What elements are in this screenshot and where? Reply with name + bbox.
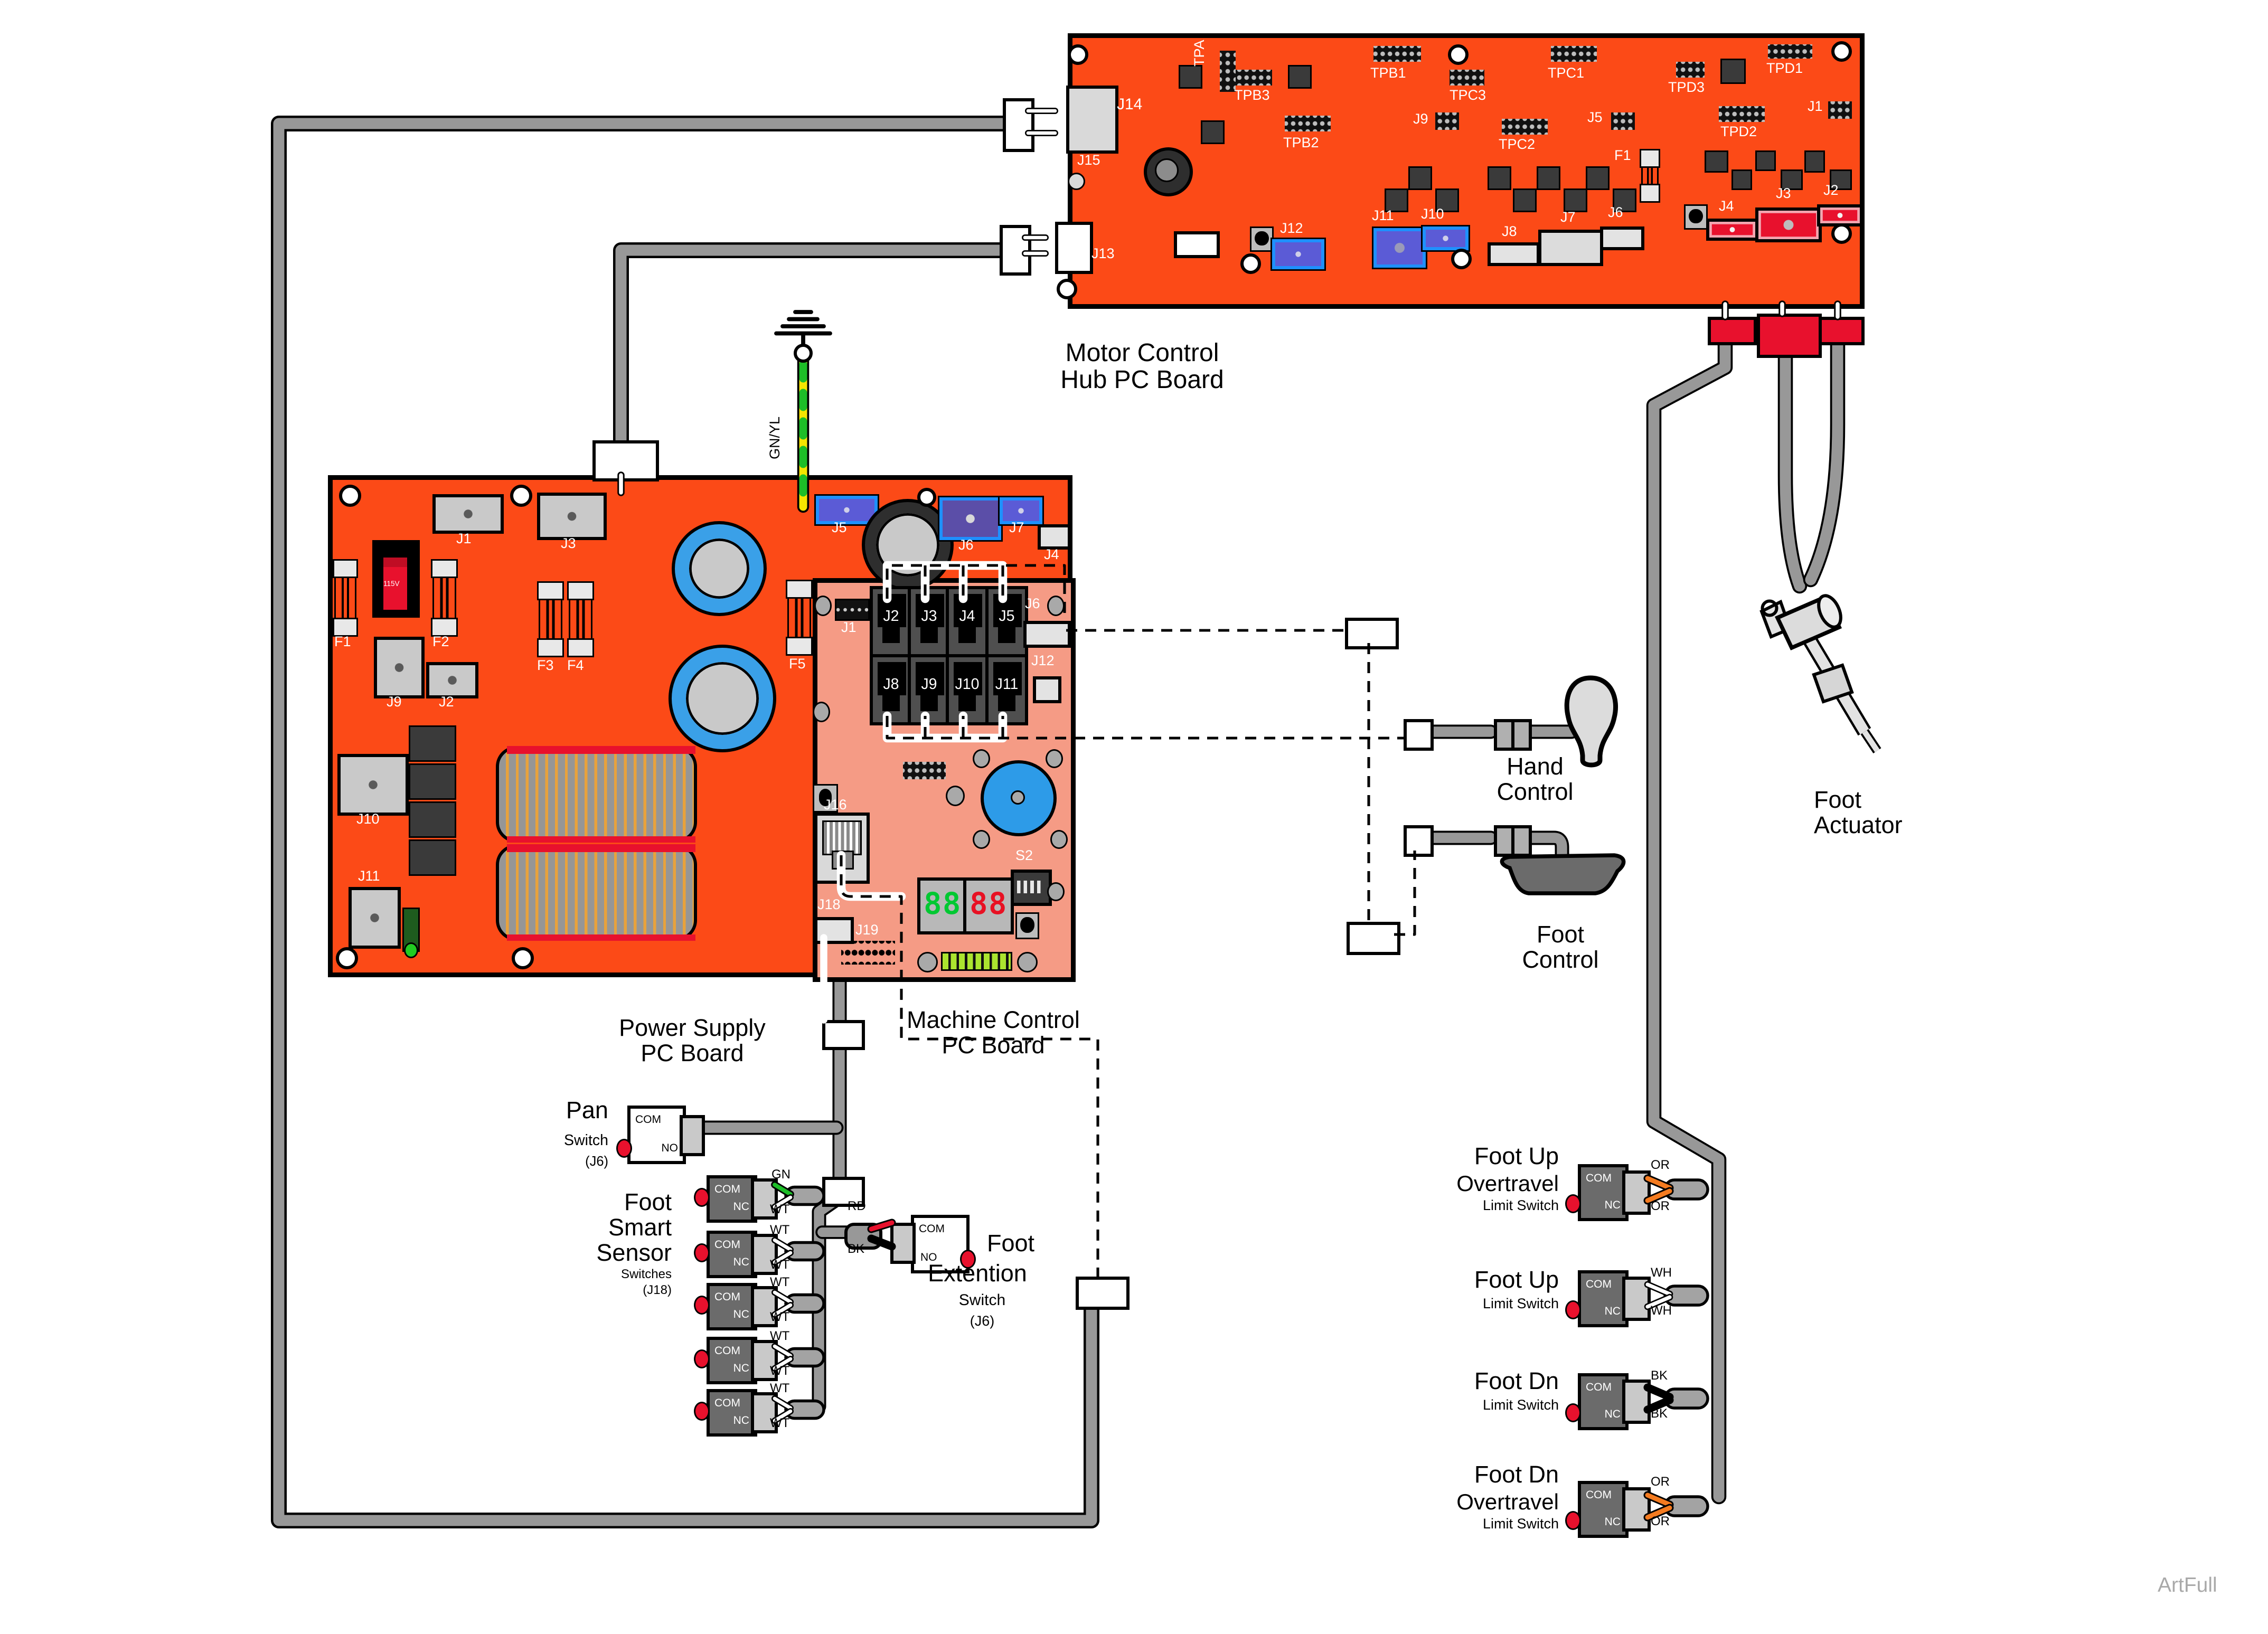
motor-board-title: Motor ControlHub PC Board: [1023, 312, 1261, 395]
hand-control-label: HandControl: [1489, 729, 1581, 807]
foot-actuator-label: FootActuator: [1814, 762, 1941, 840]
limit-bus-junctions: [1665, 1180, 1708, 1516]
power-board-title: Power SupplyPC Board: [597, 990, 787, 1069]
pan-ref-label: (J6): [537, 1155, 608, 1169]
limit3-line3: Limit Switch: [1321, 1399, 1559, 1414]
limit2-line3: Limit Switch: [1321, 1297, 1559, 1313]
limit1-line2: Overtravel: [1321, 1172, 1559, 1196]
limit-switch-wires: [1648, 1178, 1670, 1517]
smart-label-2: Smart: [583, 1216, 672, 1243]
wire-gn: GN: [771, 1167, 790, 1182]
watermark: ArtFull: [2158, 1573, 2217, 1597]
ground-symbol: [776, 312, 830, 347]
foot-control-label: FootControl: [1513, 896, 1608, 975]
limit1-line1: Foot Up: [1321, 1145, 1559, 1172]
smart-label-1: Foot: [583, 1191, 672, 1217]
wire-rd: RD: [848, 1199, 866, 1213]
ground-wire-label: GN/YL: [767, 417, 783, 459]
ext-label-1: Foot: [951, 1232, 1071, 1259]
pan-sub-label: Switch: [537, 1134, 608, 1150]
limit4-line2: Overtravel: [1321, 1490, 1559, 1515]
limit4-line1: Foot Dn: [1321, 1463, 1559, 1490]
smart-label-3: Sensor: [583, 1242, 672, 1268]
wiring-diagram-page: J14 J15 J13 TPA TPB3 TPB2 TPB1 TPC3 TPC1…: [0, 0, 2268, 1634]
limit4-line3: Limit Switch: [1321, 1517, 1559, 1533]
ext-label-2: Extention: [914, 1262, 1041, 1289]
smart-ref-label: (J18): [583, 1284, 672, 1298]
smart-sub-label: Switches: [583, 1269, 672, 1282]
ext-ref-label: (J6): [922, 1315, 1042, 1330]
limit1-line3: Limit Switch: [1321, 1199, 1559, 1215]
limit2-line1: Foot Up: [1321, 1269, 1559, 1295]
limit3-line1: Foot Dn: [1321, 1370, 1559, 1396]
pan-label: Pan: [537, 1099, 608, 1126]
foot-extension-wires: [871, 1223, 892, 1246]
ext-sub-label: Switch: [922, 1292, 1042, 1310]
wire-bk: BK: [848, 1242, 864, 1256]
machine-board-title: Machine ControlPC Board: [882, 982, 1104, 1061]
